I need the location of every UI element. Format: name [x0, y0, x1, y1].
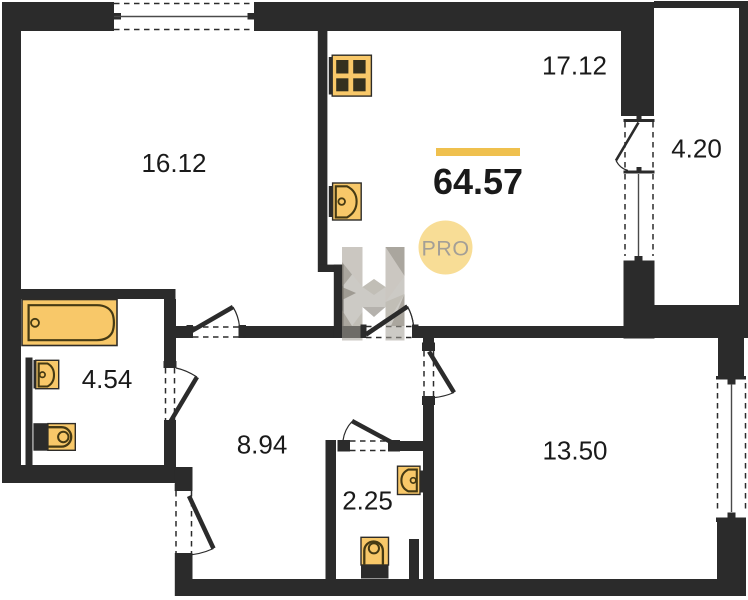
- svg-text:2.25: 2.25: [342, 486, 393, 516]
- svg-text:17.12: 17.12: [542, 51, 607, 81]
- svg-text:13.50: 13.50: [542, 436, 607, 466]
- svg-text:4.54: 4.54: [82, 364, 133, 394]
- svg-text:16.12: 16.12: [141, 148, 206, 178]
- svg-text:8.94: 8.94: [237, 430, 288, 460]
- svg-text:PRO: PRO: [421, 237, 469, 261]
- svg-text:4.20: 4.20: [671, 134, 722, 164]
- svg-text:64.57: 64.57: [433, 161, 523, 202]
